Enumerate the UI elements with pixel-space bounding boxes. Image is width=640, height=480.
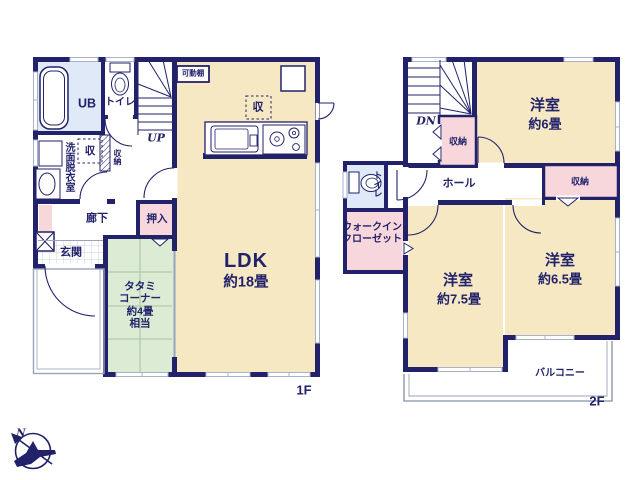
washing-machine bbox=[39, 141, 62, 166]
bathtub-inner bbox=[44, 71, 65, 125]
floorplan-linework bbox=[0, 0, 640, 480]
label-movable-shelf: 可動棚 bbox=[182, 70, 205, 79]
label-entrance: 玄関 bbox=[60, 247, 82, 260]
label-bedroom65: 洋室 bbox=[545, 252, 575, 270]
label-hall: ホール bbox=[443, 178, 476, 191]
label-bedroom75: 洋室 bbox=[443, 272, 473, 290]
kitchen-sink-inner bbox=[215, 129, 248, 149]
label-floor2: 2F bbox=[589, 393, 604, 408]
toilet-tank-1f bbox=[110, 63, 130, 72]
floor2-room-fills bbox=[345, 59, 620, 370]
ldk-room bbox=[176, 60, 318, 374]
label-ub: UB bbox=[78, 97, 96, 112]
label-stairs-dn: DN bbox=[416, 116, 436, 129]
kitchen-faucet bbox=[250, 135, 257, 146]
toilet-right-wall bbox=[384, 163, 388, 210]
label-bedroom6-size: 約6畳 bbox=[528, 116, 561, 131]
label-toilet-1f: トイレ bbox=[105, 97, 135, 109]
ldk-cabinet-box bbox=[281, 66, 305, 91]
label-corridor: 廊下 bbox=[86, 213, 108, 226]
label-storage-right: 収納 bbox=[571, 177, 589, 188]
label-compass-north: N bbox=[16, 428, 25, 440]
label-ldk-storage: 収 bbox=[253, 102, 264, 115]
vanity-basin bbox=[39, 173, 55, 195]
label-stairs-up: UP bbox=[147, 133, 165, 146]
toilet-tank-2f bbox=[349, 172, 359, 193]
label-washroom-storage: 収 bbox=[85, 145, 96, 157]
label-walkin-closet: ウォークイン クローゼット bbox=[342, 222, 402, 246]
label-wall-storage: 収納 bbox=[113, 149, 121, 165]
kitchen-back-door bbox=[318, 103, 334, 119]
label-bedroom6: 洋室 bbox=[530, 97, 560, 115]
label-bedroom75-size: 約7.5畳 bbox=[437, 291, 481, 306]
shoe-cabinet bbox=[39, 205, 52, 233]
label-balcony: バルコニー bbox=[535, 368, 585, 380]
stove-burner-small bbox=[293, 144, 300, 151]
toilet-wic-wall bbox=[343, 208, 407, 212]
label-ldk-size: 約18畳 bbox=[223, 274, 268, 291]
label-washroom: 洗面脱衣室 bbox=[63, 142, 73, 192]
label-bedroom65-size: 約6.5畳 bbox=[538, 271, 582, 286]
label-ldk: LDK bbox=[224, 250, 268, 274]
label-oshiire: 押入 bbox=[147, 213, 168, 225]
floorplan-canvas: UB トイレ 洗面脱衣室 収 収納 廊下 玄関 押入 タタミ コーナー 約4畳 … bbox=[0, 0, 640, 480]
label-toilet-2f: トイレ bbox=[373, 171, 382, 198]
label-floor1: 1F bbox=[296, 382, 311, 397]
label-storage-left: 収納 bbox=[449, 137, 467, 148]
label-tatami-corner: タタミ コーナー 約4畳 相当 bbox=[119, 280, 161, 330]
